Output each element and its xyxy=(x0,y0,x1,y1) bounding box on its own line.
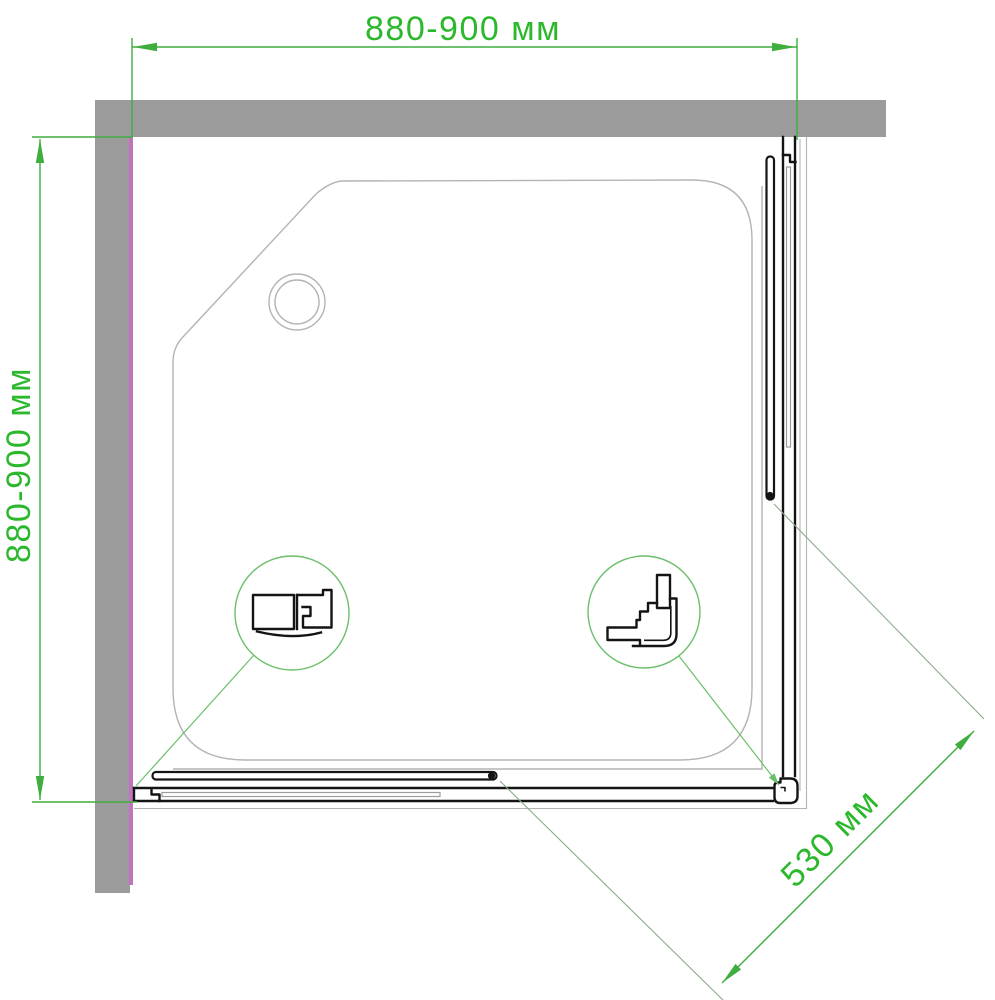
dimension-top-arrow-left xyxy=(133,43,157,51)
dimension-diagonal-extension-top xyxy=(774,504,984,719)
dimension-diagonal-arrow-top xyxy=(955,731,974,750)
detail-circle-right-leader xyxy=(679,656,779,785)
drain xyxy=(269,274,325,330)
enclosure-outer-boundary xyxy=(134,137,807,809)
tray-rim-outline xyxy=(173,186,762,769)
bottom-door-roller xyxy=(488,772,495,779)
detail-circle-left xyxy=(136,556,349,786)
bottom-rail xyxy=(134,788,773,801)
dimension-left-arrow-bottom xyxy=(36,776,44,800)
dimension-top-label: 880-900 мм xyxy=(365,10,561,48)
dimension-left-label: 880-900 мм xyxy=(0,367,38,563)
bottom-sliding-door xyxy=(153,772,497,780)
dimension-diagonal: 530 мм xyxy=(500,504,984,1000)
bottom-rail-profile-section xyxy=(253,590,332,636)
detail-circle-left-leader xyxy=(136,655,254,786)
left-wall xyxy=(95,100,130,893)
right-rail-wall-connector xyxy=(783,155,796,162)
dimension-top-arrow-right xyxy=(772,43,796,51)
tray-bowl-outline xyxy=(173,180,752,760)
right-fixed-glass xyxy=(787,167,791,447)
corner-connector xyxy=(775,779,798,804)
dimension-diagonal-extension-bottom xyxy=(500,781,729,1000)
bottom-rail-wall-connector xyxy=(152,789,160,802)
top-wall xyxy=(95,100,886,137)
right-sliding-door xyxy=(766,157,774,500)
bottom-fixed-glass xyxy=(162,793,440,797)
dimension-left-arrow-top xyxy=(36,139,44,163)
shower-enclosure-technical-drawing: 880-900 мм 880-900 мм 530 мм xyxy=(0,0,995,1000)
corner-profile-section xyxy=(608,575,677,646)
right-door-roller xyxy=(766,492,773,499)
detail-circle-right xyxy=(588,556,779,785)
right-rail xyxy=(783,137,796,776)
shower-tray xyxy=(173,180,762,769)
dimension-diagonal-arrow-bottom xyxy=(722,964,741,983)
wall-accent-line xyxy=(129,137,133,885)
